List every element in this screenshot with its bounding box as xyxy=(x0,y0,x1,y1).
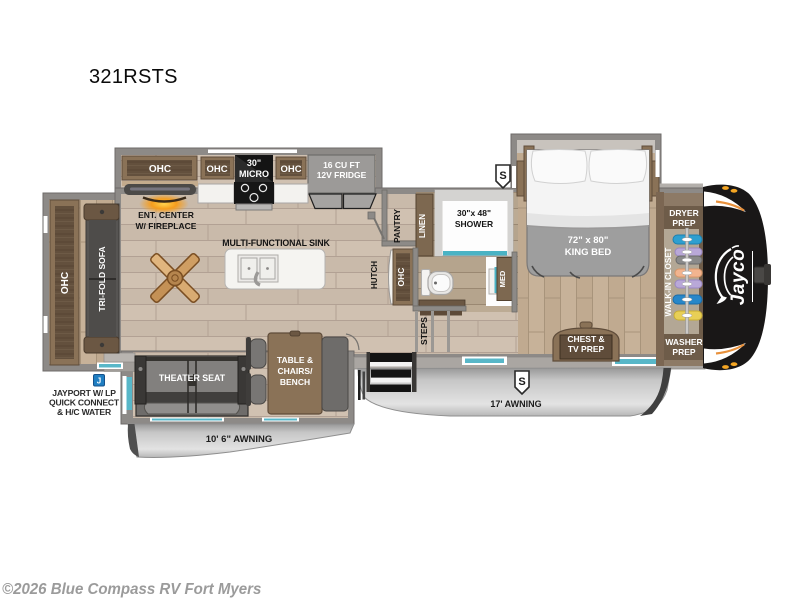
svg-text:OHC: OHC xyxy=(396,268,406,287)
svg-text:TV PREP: TV PREP xyxy=(568,344,605,354)
svg-text:30"x 48": 30"x 48" xyxy=(457,208,491,218)
svg-text:LINEN: LINEN xyxy=(418,214,427,238)
svg-text:KING BED: KING BED xyxy=(565,247,612,258)
svg-text:MULTI-FUNCTIONAL SINK: MULTI-FUNCTIONAL SINK xyxy=(222,238,330,248)
svg-text:QUICK CONNECT: QUICK CONNECT xyxy=(49,398,120,408)
svg-text:WASHER: WASHER xyxy=(665,337,702,347)
svg-text:CHAIRS/: CHAIRS/ xyxy=(278,366,314,376)
svg-text:17' AWNING: 17' AWNING xyxy=(490,399,541,409)
svg-text:& H/C WATER: & H/C WATER xyxy=(57,407,112,417)
svg-text:W/ FIREPLACE: W/ FIREPLACE xyxy=(136,221,197,231)
svg-text:WALK-IN CLOSET: WALK-IN CLOSET xyxy=(664,247,673,316)
svg-text:TABLE &: TABLE & xyxy=(277,355,313,365)
svg-text:OHC: OHC xyxy=(280,164,301,175)
svg-text:MICRO: MICRO xyxy=(239,169,269,179)
svg-text:SHOWER: SHOWER xyxy=(455,219,493,229)
svg-text:J: J xyxy=(97,377,101,386)
svg-text:STEPS: STEPS xyxy=(419,317,429,345)
svg-text:30": 30" xyxy=(247,158,261,168)
svg-text:BENCH: BENCH xyxy=(280,377,310,387)
svg-text:TRI-FOLD SOFA: TRI-FOLD SOFA xyxy=(97,246,107,311)
svg-text:16 CU FT: 16 CU FT xyxy=(323,160,361,170)
svg-text:PREP: PREP xyxy=(672,218,695,228)
svg-text:HUTCH: HUTCH xyxy=(370,261,379,289)
svg-text:CHEST &: CHEST & xyxy=(567,334,604,344)
svg-text:OHC: OHC xyxy=(60,272,71,294)
svg-text:PANTRY: PANTRY xyxy=(392,209,402,243)
svg-text:DRYER: DRYER xyxy=(669,208,698,218)
svg-text:OHC: OHC xyxy=(206,164,227,175)
svg-text:JAYPORT W/ LP: JAYPORT W/ LP xyxy=(52,388,116,398)
svg-text:12V FRIDGE: 12V FRIDGE xyxy=(317,170,367,180)
svg-text:MED: MED xyxy=(498,270,507,287)
svg-text:ENT. CENTER: ENT. CENTER xyxy=(138,210,194,220)
svg-text:S: S xyxy=(518,376,525,388)
svg-text:PREP: PREP xyxy=(672,347,695,357)
svg-text:OHC: OHC xyxy=(149,164,171,175)
svg-text:S: S xyxy=(499,170,506,182)
svg-text:THEATER SEAT: THEATER SEAT xyxy=(159,373,226,383)
svg-text:Jayco: Jayco xyxy=(728,249,749,305)
svg-text:10' 6" AWNING: 10' 6" AWNING xyxy=(206,434,273,445)
svg-text:72" x 80": 72" x 80" xyxy=(568,235,609,246)
